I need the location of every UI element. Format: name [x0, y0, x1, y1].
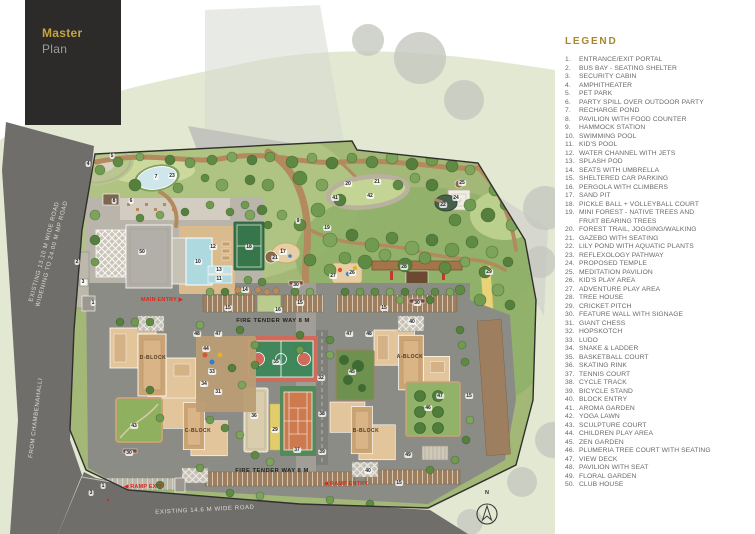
legend-item-number: 9.	[565, 124, 579, 133]
legend-item-number: 43.	[565, 422, 579, 431]
map-number-label: 43	[130, 423, 138, 429]
legend-item: 3.SECURITY CABIN	[565, 73, 753, 82]
map-number-label: 42	[366, 193, 374, 199]
legend-item-number: 33.	[565, 337, 579, 346]
legend-item: 37.TENNIS COURT	[565, 371, 753, 380]
legend-item-label: GIANT CHESS	[579, 320, 625, 329]
legend-item-number: 20.	[565, 226, 579, 235]
map-number-label: 26	[348, 270, 356, 276]
legend-item-label: SHELTERED CAR PARKING	[579, 175, 668, 184]
map-number-label: 15	[296, 300, 304, 306]
map-number-label: 32	[317, 375, 325, 381]
map-number-label: 14	[241, 287, 249, 293]
legend-item-number: 42.	[565, 413, 579, 422]
map-number-label: 38	[318, 411, 326, 417]
legend-item: 13.SPLASH POD	[565, 158, 753, 167]
legend-item-label: BLOCK ENTRY	[579, 396, 627, 405]
legend-item: 22.LILY POND WITH AQUATIC PLANTS	[565, 243, 753, 252]
map-number-label: 35	[272, 359, 280, 365]
legend-item-label: MINI FOREST - NATIVE TREES AND FRUIT BEA…	[579, 209, 694, 226]
legend-item: 12.WATER CHANNEL WITH JETS	[565, 150, 753, 159]
map-number-label: 16	[274, 307, 282, 313]
legend-item-label: BASKETBALL COURT	[579, 354, 649, 363]
legend-item-label: PICKLE BALL + VOLLEYBALL COURT	[579, 201, 699, 210]
legend-item-number: 17.	[565, 192, 579, 201]
legend-item-label: AMPHITHEATER	[579, 82, 632, 91]
legend-item: 9.HAMMOCK STATION	[565, 124, 753, 133]
legend-item-number: 36.	[565, 362, 579, 371]
legend-item-label: KID'S POOL	[579, 141, 617, 150]
legend-item: 30.FEATURE WALL WITH SIGNAGE	[565, 311, 753, 320]
title-card: Master Plan	[25, 0, 121, 125]
legend-item-label: MEDITATION PAVILION	[579, 269, 653, 278]
legend-item-label: CHILDREN PLAY AREA	[579, 430, 653, 439]
legend-item-number: 21.	[565, 235, 579, 244]
legend-item-number: 44.	[565, 430, 579, 439]
legend-item-number: 7.	[565, 107, 579, 116]
map-number-label: 45	[348, 369, 356, 375]
legend-item-label: PROPOSED TEMPLE	[579, 260, 647, 269]
legend-item-number: 10.	[565, 133, 579, 142]
legend-item: 32.HOPSKOTCH	[565, 328, 753, 337]
legend-item-number: 2.	[565, 65, 579, 74]
legend-item-label: PERGOLA WITH CLIMBERS	[579, 184, 668, 193]
map-number-label: 15	[224, 305, 232, 311]
map-number-label: 18	[245, 244, 253, 250]
legend-item-number: 5.	[565, 90, 579, 99]
legend-item-label: PAVILION WITH FOOD COUNTER	[579, 116, 687, 125]
legend-item-number: 18.	[565, 201, 579, 210]
legend-item: 43.SCULPTURE COURT	[565, 422, 753, 431]
map-number-label: 24	[452, 195, 460, 201]
legend-item-number: 25.	[565, 269, 579, 278]
legend-item: 1.ENTRANCE/EXIT PORTAL	[565, 56, 753, 65]
legend-item: 28.TREE HOUSE	[565, 294, 753, 303]
map-number-label: 48	[365, 331, 373, 337]
legend-item: 5.PET PARK	[565, 90, 753, 99]
legend-item: 6.PARTY SPILL OVER OUTDOOR PARTY	[565, 99, 753, 108]
map-number-label: 12	[209, 244, 217, 250]
legend-item: 46.PLUMERIA TREE COURT WITH SEATING	[565, 447, 753, 456]
map-number-label: 48	[193, 331, 201, 337]
map-number-label: 29	[271, 427, 279, 433]
map-number-label: 30	[125, 450, 133, 456]
map-number-label: 25	[458, 180, 466, 186]
legend-item: 18.PICKLE BALL + VOLLEYBALL COURT	[565, 201, 753, 210]
legend-item: 36.SKATING RINK	[565, 362, 753, 371]
legend-item: 19.MINI FOREST - NATIVE TREES AND FRUIT …	[565, 209, 753, 226]
legend-item: 33.LUDO	[565, 337, 753, 346]
legend-item: 11.KID'S POOL	[565, 141, 753, 150]
map-number-label: 3	[81, 279, 86, 285]
legend-item: 24.PROPOSED TEMPLE	[565, 260, 753, 269]
legend-item-number: 45.	[565, 439, 579, 448]
legend-item-number: 13.	[565, 158, 579, 167]
map-number-label: 6	[129, 198, 134, 204]
map-number-label: 20	[344, 181, 352, 187]
legend-item: 7.RECHARGE POND	[565, 107, 753, 116]
legend-item-number: 47.	[565, 456, 579, 465]
map-number-label: 40	[364, 468, 372, 474]
entry-annotation: ◀ RAMP ENTRY	[324, 481, 368, 487]
road-label: EXISTING 14.6 M WIDE ROAD	[155, 505, 255, 518]
legend-item-label: YOGA LAWN	[579, 413, 620, 422]
map-number-label: 1	[91, 300, 96, 306]
legend-item: 49.FLORAL GARDEN	[565, 473, 753, 482]
legend-item-label: PAVILION WITH SEAT	[579, 464, 648, 473]
legend-item: 27.ADVENTURE PLAY AREA	[565, 286, 753, 295]
legend-item-label: SECURITY CABIN	[579, 73, 636, 82]
map-number-label: 21	[373, 179, 381, 185]
map-number-label: 10	[194, 259, 202, 265]
page-title: Master	[42, 26, 121, 40]
map-number-label: 47	[214, 331, 222, 337]
legend-item: 20.FOREST TRAIL, JOGGING/WALKING	[565, 226, 753, 235]
map-number-label: 44	[202, 346, 210, 352]
legend-item: 10.SWIMMING POOL	[565, 133, 753, 142]
legend-item-number: 50.	[565, 481, 579, 490]
legend-item: 31.GIANT CHESS	[565, 320, 753, 329]
legend-item-label: AROMA GARDEN	[579, 405, 635, 414]
legend-item-label: ENTRANCE/EXIT PORTAL	[579, 56, 662, 65]
legend-item-number: 48.	[565, 464, 579, 473]
legend-item: 26.KID'S PLAY AREA	[565, 277, 753, 286]
map-number-label: 22	[439, 202, 447, 208]
legend-item-number: 46.	[565, 447, 579, 456]
map-number-label: 30	[413, 300, 421, 306]
legend-item-number: 32.	[565, 328, 579, 337]
legend-item-label: SNAKE & LADDER	[579, 345, 638, 354]
legend-item-label: CRICKET PITCH	[579, 303, 631, 312]
legend-item-number: 30.	[565, 311, 579, 320]
legend-item-number: 28.	[565, 294, 579, 303]
legend-item-number: 35.	[565, 354, 579, 363]
legend-item-label: FOREST TRAIL, JOGGING/WALKING	[579, 226, 697, 235]
map-number-label: 40	[408, 319, 416, 325]
legend-item-label: WATER CHANNEL WITH JETS	[579, 150, 675, 159]
legend-item-label: SAND PIT	[579, 192, 611, 201]
legend-item-label: SWIMMING POOL	[579, 133, 636, 142]
legend-item-label: ADVENTURE PLAY AREA	[579, 286, 660, 295]
legend-item-label: HOPSKOTCH	[579, 328, 622, 337]
map-number-label: 11	[215, 276, 222, 282]
entry-annotation: ◀ RAMP EXIT	[124, 484, 162, 490]
master-plan-page: Master Plan	[0, 0, 755, 534]
legend-item-number: 24.	[565, 260, 579, 269]
legend-item-label: BUS BAY - SEATING SHELTER	[579, 65, 677, 74]
map-number-label: 29	[485, 269, 493, 275]
legend-item: 40.BLOCK ENTRY	[565, 396, 753, 405]
legend-item-number: 6.	[565, 99, 579, 108]
legend-item-number: 11.	[565, 141, 579, 150]
legend-item: 47.VIEW DECK	[565, 456, 753, 465]
legend-item-number: 29.	[565, 303, 579, 312]
legend-item-label: SKATING RINK	[579, 362, 627, 371]
legend-item: 25.MEDITATION PAVILION	[565, 269, 753, 278]
legend-item-label: ZEN GARDEN	[579, 439, 624, 448]
legend-title: LEGEND	[565, 36, 753, 47]
legend-item-number: 49.	[565, 473, 579, 482]
legend-item-number: 40.	[565, 396, 579, 405]
legend-item-label: RECHARGE POND	[579, 107, 639, 116]
legend-item: 8.PAVILION WITH FOOD COUNTER	[565, 116, 753, 125]
legend-item-number: 26.	[565, 277, 579, 286]
map-number-label: 50	[138, 249, 146, 255]
road-label: EXISTING 13.10 M WIDE ROAD WIDENING TO 2…	[28, 198, 71, 308]
legend-item-number: 31.	[565, 320, 579, 329]
legend-item-number: 39.	[565, 388, 579, 397]
map-number-label: 39	[318, 449, 326, 455]
map-number-label: 36	[250, 413, 258, 419]
legend-item: 4.AMPHITHEATER	[565, 82, 753, 91]
map-number-label: 15	[465, 393, 473, 399]
map-number-label: 15	[380, 305, 388, 311]
legend-item: 34.SNAKE & LADDER	[565, 345, 753, 354]
legend-item: 48.PAVILION WITH SEAT	[565, 464, 753, 473]
legend-item-number: 8.	[565, 116, 579, 125]
map-number-label: 30	[292, 282, 300, 288]
legend-item-number: 37.	[565, 371, 579, 380]
map-number-label: 31	[214, 389, 222, 395]
map-number-label: 1	[101, 483, 106, 489]
legend-item-number: 16.	[565, 184, 579, 193]
map-number-label: 41	[331, 195, 339, 201]
legend-item-label: CYCLE TRACK	[579, 379, 627, 388]
block-label: C-BLOCK	[185, 428, 212, 434]
map-number-label: 21	[271, 255, 279, 261]
map-number-label: 2	[75, 259, 80, 265]
map-number-label: 9	[296, 218, 301, 224]
legend-item: 14.SEATS WITH UMBRELLA	[565, 167, 753, 176]
legend-panel: LEGEND 1.ENTRANCE/EXIT PORTAL2.BUS BAY -…	[556, 0, 755, 534]
fire-tender-label: FIRE TENDER WAY 8 M	[236, 318, 310, 324]
map-number-label: 49	[404, 452, 412, 458]
legend-list: 1.ENTRANCE/EXIT PORTAL2.BUS BAY - SEATIN…	[565, 56, 753, 490]
legend-item-number: 3.	[565, 73, 579, 82]
legend-item-number: 4.	[565, 82, 579, 91]
legend-item-label: SPLASH POD	[579, 158, 623, 167]
legend-item-label: SCULPTURE COURT	[579, 422, 647, 431]
map-number-label: 19	[323, 225, 331, 231]
legend-item-label: GAZEBO WITH SEATING	[579, 235, 658, 244]
map-number-label: 47	[436, 393, 444, 399]
map-number-label: 23	[168, 173, 176, 179]
legend-item: 23.REFLEXOLOGY PATHWAY	[565, 252, 753, 261]
legend-item: 42.YOGA LAWN	[565, 413, 753, 422]
map-number-label: 27	[329, 273, 337, 279]
legend-item-label: LILY POND WITH AQUATIC PLANTS	[579, 243, 694, 252]
block-label: A-BLOCK	[397, 354, 424, 360]
legend-item: 50.CLUB HOUSE	[565, 481, 753, 490]
legend-item-label: PLUMERIA TREE COURT WITH SEATING	[579, 447, 711, 456]
legend-item-label: FEATURE WALL WITH SIGNAGE	[579, 311, 683, 320]
compass-icon: N	[470, 490, 504, 532]
map-number-label: 13	[215, 267, 223, 273]
entry-annotation: ▼	[105, 498, 111, 504]
page-subtitle: Plan	[42, 42, 121, 56]
legend-item-label: TENNIS COURT	[579, 371, 630, 380]
map-number-label: 34	[200, 381, 208, 387]
legend-item-label: FLORAL GARDEN	[579, 473, 637, 482]
map-number-label: 28	[400, 264, 408, 270]
legend-item-label: PET PARK	[579, 90, 612, 99]
legend-item: 29.CRICKET PITCH	[565, 303, 753, 312]
legend-item-number: 22.	[565, 243, 579, 252]
legend-item: 16.PERGOLA WITH CLIMBERS	[565, 184, 753, 193]
legend-item-label: SEATS WITH UMBRELLA	[579, 167, 659, 176]
legend-item-number: 27.	[565, 286, 579, 295]
legend-item-label: BICYCLE STAND	[579, 388, 633, 397]
legend-item: 44.CHILDREN PLAY AREA	[565, 430, 753, 439]
legend-item-label: LUDO	[579, 337, 598, 346]
map-number-label: 46	[424, 405, 432, 411]
legend-item: 39.BICYCLE STAND	[565, 388, 753, 397]
legend-item-number: 14.	[565, 167, 579, 176]
legend-item-label: HAMMOCK STATION	[579, 124, 645, 133]
legend-item: 21.GAZEBO WITH SEATING	[565, 235, 753, 244]
map-number-label: 33	[208, 369, 216, 375]
legend-item: 2.BUS BAY - SEATING SHELTER	[565, 65, 753, 74]
legend-item-number: 23.	[565, 252, 579, 261]
legend-item-number: 34.	[565, 345, 579, 354]
legend-item: 15.SHELTERED CAR PARKING	[565, 175, 753, 184]
legend-item-number: 15.	[565, 175, 579, 184]
map-number-label: 37	[293, 447, 301, 453]
map-number-label: 5	[110, 153, 115, 159]
legend-item: 41.AROMA GARDEN	[565, 405, 753, 414]
legend-item-label: REFLEXOLOGY PATHWAY	[579, 252, 664, 261]
legend-item-label: CLUB HOUSE	[579, 481, 623, 490]
legend-item-label: KID'S PLAY AREA	[579, 277, 635, 286]
legend-item-number: 41.	[565, 405, 579, 414]
legend-item-number: 38.	[565, 379, 579, 388]
block-label: B-BLOCK	[353, 428, 380, 434]
map-number-label: 3	[89, 490, 94, 496]
legend-item-label: TREE HOUSE	[579, 294, 623, 303]
legend-item-label: PARTY SPILL OVER OUTDOOR PARTY	[579, 99, 704, 108]
map-number-label: 17	[279, 249, 287, 255]
legend-item: 17.SAND PIT	[565, 192, 753, 201]
fire-tender-label: FIRE TENDER WAY 8 M	[235, 468, 309, 474]
map-number-label: 47	[345, 331, 353, 337]
map-number-label: 7	[154, 174, 159, 180]
legend-item-number: 12.	[565, 150, 579, 159]
map-number-label: 8	[112, 198, 117, 204]
legend-item-number: 1.	[565, 56, 579, 65]
legend-item: 45.ZEN GARDEN	[565, 439, 753, 448]
legend-item: 38.CYCLE TRACK	[565, 379, 753, 388]
legend-item-label: VIEW DECK	[579, 456, 617, 465]
road-label: FROM CHAMBENAHALLI	[28, 377, 45, 458]
legend-item: 35.BASKETBALL COURT	[565, 354, 753, 363]
legend-item-number: 19.	[565, 209, 579, 226]
map-number-label: 4	[86, 161, 91, 167]
block-label: D-BLOCK	[140, 355, 167, 361]
entry-annotation: MAIN ENTRY ▶	[141, 297, 183, 303]
map-number-label: 15	[395, 480, 403, 486]
